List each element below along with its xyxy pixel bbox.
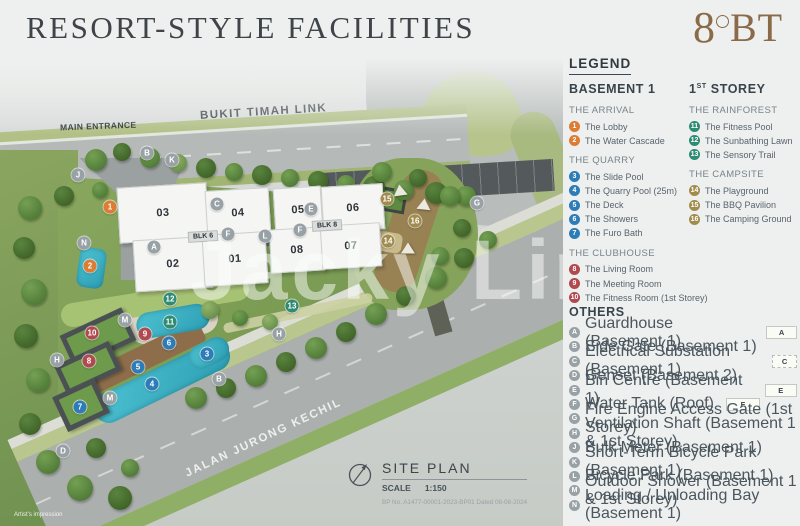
tree-icon [245,365,267,387]
map-marker-5: 5 [132,361,145,374]
tree-icon [67,475,93,501]
map-marker-7: 7 [74,401,87,414]
legend-group-name: THE RAINFOREST [689,105,799,116]
brand-logo: 8 BT [693,6,783,50]
legend-other-letter: J [569,442,580,453]
legend-other-letter: D [569,370,580,381]
legend-other-label: Loading / Unloading Bay (Basement 1) [585,487,797,523]
logo-8: 8 [693,6,715,50]
legend-group-name: THE CLUBHOUSE [569,248,687,259]
logo-rosette-icon [716,15,729,28]
legend-item-number: 6 [569,214,580,225]
tree-icon [196,158,216,178]
legend-item: 3The Slide Pool [569,171,687,182]
logo-bt: BT [730,8,783,48]
tree-icon [281,169,299,187]
tree-icon [409,169,427,187]
tree-icon [85,149,107,171]
tree-icon [21,279,47,305]
map-marker-2: 2 [84,260,97,273]
legend-item-number: 10 [569,292,580,303]
legend-item-number: 8 [569,264,580,275]
tree-icon [185,387,207,409]
legend-item-number: 4 [569,185,580,196]
site-plan-map: 0304050602010807BLK 6BLK 8 1234567891011… [0,0,563,526]
legend-other-letter: L [569,471,580,482]
artist-impression-note: Artist's impression [14,512,63,518]
legend-item-label: The Showers [585,214,638,224]
legend-group-name: THE ARRIVAL [569,105,687,116]
map-marker-N: N [78,237,91,250]
legend-item: 13The Sensory Trail [689,149,799,160]
tree-icon [14,324,38,348]
legend-item: 7The Furo Bath [569,228,687,239]
map-marker-8: 8 [83,355,96,368]
legend-other-item: KShort-Term Bicycle Park (Basement 1) [569,457,797,468]
titleblock-bp-number: BP No. A1477-00001-2023-BP01 Dated 08-08… [382,499,527,506]
legend-item: 15The BBQ Pavilion [689,200,799,211]
legend-item-number: 15 [689,200,700,211]
legend-item-label: The Fitness Pool [705,122,773,132]
titleblock: SITE PLAN SCALE1:150 BP No. A1477-00001-… [346,460,527,506]
legend-plan-tag: A [766,326,797,339]
legend-item-label: The Living Room [585,264,653,274]
legend-item: 8The Living Room [569,264,687,275]
map-marker-G: G [471,197,484,210]
legend-item-label: The Quarry Pool (25m) [585,186,677,196]
legend-item: 12The Sunbathing Lawn [689,135,799,146]
watermark: Jacky Lim [190,222,563,319]
map-marker-4: 4 [146,378,159,391]
legend-header-first-storey: 1ST STOREY [689,82,799,96]
titleblock-scale: SCALE1:150 [382,483,527,493]
map-marker-9: 9 [139,328,152,341]
legend-group-name: THE CAMPSITE [689,169,799,180]
map-marker-J: J [72,169,85,182]
map-marker-M: M [104,392,117,405]
legend-item-number: 13 [689,149,700,160]
legend-plan-tag: C [772,355,797,368]
legend-item-number: 14 [689,185,700,196]
legend-item-number: 7 [569,228,580,239]
page-title: RESORT-STYLE FACILITIES [26,10,475,46]
map-marker-12: 12 [164,293,177,306]
legend-other-letter: H [569,428,580,439]
legend-item-label: The Meeting Room [585,279,662,289]
legend-column-first-storey: 1ST STOREY THE RAINFOREST11The Fitness P… [689,82,799,228]
legend-item: 9The Meeting Room [569,278,687,289]
tree-icon [336,322,356,342]
tree-icon [86,438,106,458]
legend-other-item: NLoading / Unloading Bay (Basement 1) [569,500,797,511]
tree-icon [121,459,139,477]
legend-other-letter: M [569,485,580,496]
legend-item-label: The Playground [705,186,769,196]
legend-item: 4The Quarry Pool (25m) [569,185,687,196]
map-marker-M: M [119,314,132,327]
legend-item-label: The Deck [585,200,624,210]
map-marker-H: H [51,354,64,367]
legend-group-name: THE QUARRY [569,155,687,166]
tree-icon [305,337,327,359]
legend-item: 16The Camping Ground [689,214,799,225]
tent-icon [392,184,407,197]
legend-other-letter: N [569,500,580,511]
legend-other-letter: A [569,327,580,338]
map-marker-B: B [141,147,154,160]
legend-other-letter: C [569,356,580,367]
legend-item-number: 11 [689,121,700,132]
tree-icon [26,368,50,392]
map-marker-K: K [166,154,179,167]
map-marker-15: 15 [381,193,394,206]
legend-other-letter: K [569,457,580,468]
map-marker-D: D [57,445,70,458]
legend-item-label: The Camping Ground [705,214,792,224]
tree-icon [18,196,42,220]
legend-others: OTHERS AGuardhouse (Basement 1)ABSide Ga… [569,305,797,514]
legend-other-item: CElectrical Substation (Basement 1)C [569,356,797,367]
legend-item-label: The Sensory Trail [705,150,776,160]
map-marker-3: 3 [201,348,214,361]
legend-other-item: HVentilation Shaft (Basement 1 & 1st Sto… [569,428,797,439]
legend-item-number: 16 [689,214,700,225]
tent-icon [416,198,431,210]
legend-item: 10The Fitness Room (1st Storey) [569,292,687,303]
map-marker-1: 1 [104,201,117,214]
north-arrow-icon [346,460,374,488]
legend-item-number: 2 [569,135,580,146]
legend-item: 14The Playground [689,185,799,196]
legend-item-label: The Fitness Room (1st Storey) [585,293,708,303]
tree-icon [108,486,132,510]
legend-item-label: The Lobby [585,122,628,132]
legend-other-letter: G [569,413,580,424]
legend-item: 11The Fitness Pool [689,121,799,132]
legend-item-label: The Water Cascade [585,136,665,146]
legend-item: 5The Deck [569,200,687,211]
site-plan-page: 0304050602010807BLK 6BLK 8 1234567891011… [0,0,800,526]
legend-item-label: The Slide Pool [585,172,644,182]
legend-item-number: 3 [569,171,580,182]
tree-icon [13,237,35,259]
map-marker-6: 6 [163,337,176,350]
legend-plan-tag: E [765,384,797,397]
map-marker-E: E [305,203,318,216]
tree-icon [19,413,41,435]
legend-item-label: The BBQ Pavilion [705,200,776,210]
tree-icon [372,162,392,182]
legend-item: 6The Showers [569,214,687,225]
map-marker-10: 10 [86,327,99,340]
legend-header-basement: BASEMENT 1 [569,82,687,96]
legend-other-item: AGuardhouse (Basement 1)A [569,327,797,338]
legend-panel: LEGEND BASEMENT 1 THE ARRIVAL1The Lobby2… [563,0,800,526]
legend-item: 1The Lobby [569,121,687,132]
tree-icon [54,186,74,206]
legend-item-label: The Sunbathing Lawn [705,136,793,146]
legend-item-number: 1 [569,121,580,132]
map-marker-B: B [213,373,226,386]
tree-icon [113,143,131,161]
map-marker-H: H [273,328,286,341]
tree-icon [252,165,272,185]
legend-other-letter: B [569,341,580,352]
legend-item-number: 12 [689,135,700,146]
legend-column-basement: BASEMENT 1 THE ARRIVAL1The Lobby2The Wat… [569,82,687,307]
legend-other-letter: E [569,385,580,396]
tree-icon [440,186,460,206]
tree-icon [92,182,108,198]
tree-icon [276,352,296,372]
map-marker-11: 11 [164,316,177,329]
legend-other-letter: F [569,399,580,410]
tree-icon [225,163,243,181]
map-marker-C: C [211,198,224,211]
legend-item: 2The Water Cascade [569,135,687,146]
legend-other-item: EBin Centre (Basement 1)E [569,385,797,396]
map-marker-A: A [148,241,161,254]
legend-item-number: 9 [569,278,580,289]
legend-item-number: 5 [569,200,580,211]
legend-title: LEGEND [569,56,631,75]
legend-item-label: The Furo Bath [585,228,643,238]
titleblock-name: SITE PLAN [382,460,527,480]
